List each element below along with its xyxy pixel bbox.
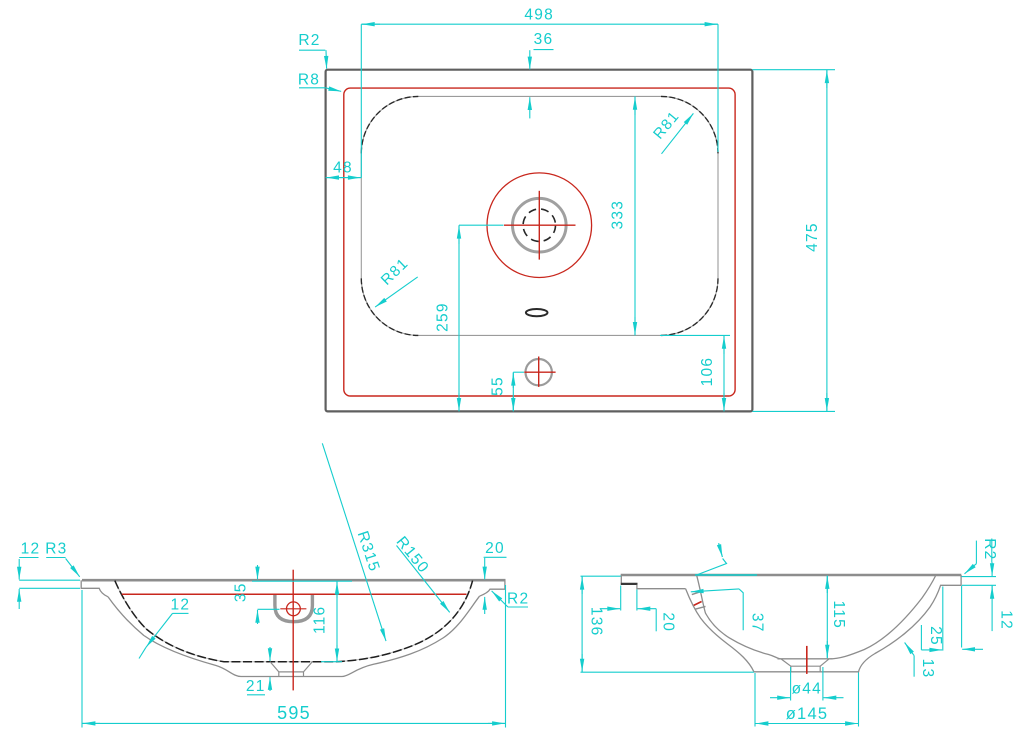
- svg-text:12: 12: [998, 610, 1015, 630]
- svg-text:25: 25: [927, 626, 944, 646]
- svg-text:21: 21: [246, 678, 266, 695]
- svg-text:55: 55: [489, 376, 506, 396]
- svg-text:20: 20: [660, 612, 677, 632]
- svg-text:ø145: ø145: [786, 705, 829, 723]
- svg-text:R2: R2: [507, 590, 529, 607]
- svg-text:R3: R3: [45, 541, 67, 558]
- svg-text:115: 115: [830, 601, 847, 629]
- svg-text:R8: R8: [298, 72, 320, 89]
- svg-text:12: 12: [171, 597, 191, 614]
- svg-text:37: 37: [749, 613, 766, 633]
- svg-text:13: 13: [919, 659, 936, 679]
- svg-text:259: 259: [435, 302, 452, 332]
- svg-text:48: 48: [333, 160, 353, 177]
- svg-text:595: 595: [277, 703, 311, 723]
- svg-text:36: 36: [534, 31, 554, 48]
- svg-text:R2: R2: [981, 538, 998, 560]
- svg-text:475: 475: [804, 222, 821, 252]
- svg-text:106: 106: [699, 357, 716, 387]
- svg-text:136: 136: [588, 607, 605, 637]
- svg-text:116: 116: [311, 606, 328, 634]
- svg-text:498: 498: [524, 6, 554, 23]
- svg-text:20: 20: [485, 540, 505, 557]
- svg-text:R2: R2: [298, 32, 320, 49]
- svg-text:333: 333: [610, 200, 627, 230]
- svg-text:35: 35: [233, 582, 250, 602]
- svg-text:12: 12: [21, 541, 41, 558]
- svg-text:ø44: ø44: [792, 681, 822, 698]
